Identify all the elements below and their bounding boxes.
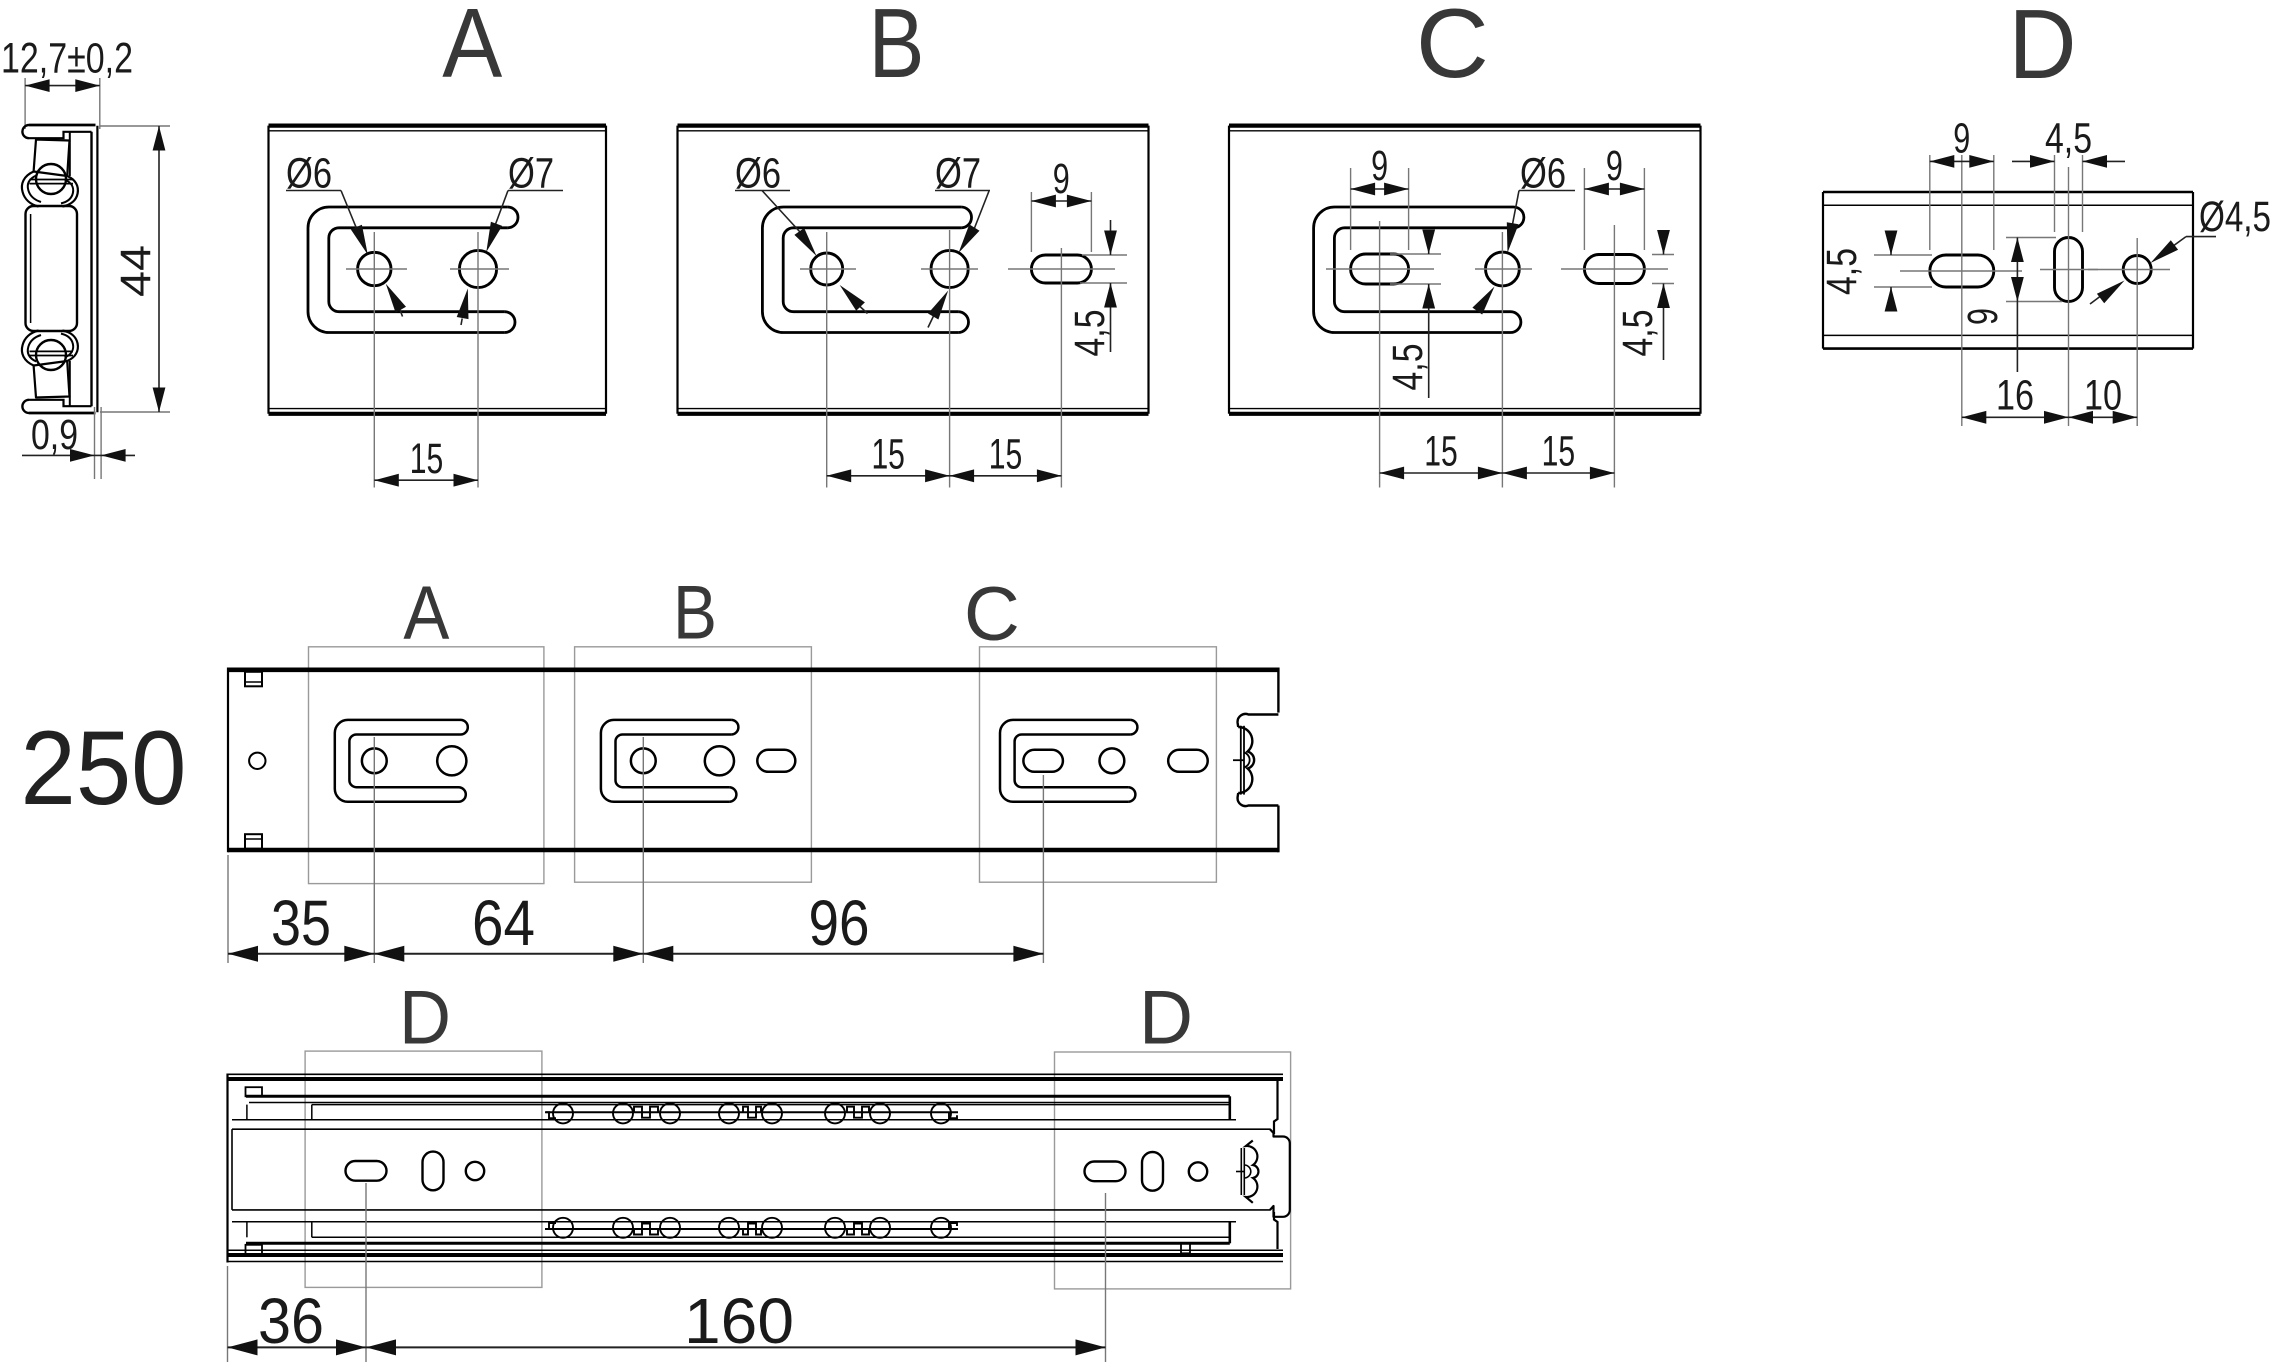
svg-text:35: 35 — [271, 887, 331, 959]
svg-text:D: D — [399, 975, 451, 1060]
svg-text:4,5: 4,5 — [1614, 310, 1662, 357]
svg-text:Ø4,5: Ø4,5 — [2199, 193, 2271, 241]
svg-text:9: 9 — [1606, 142, 1623, 190]
svg-text:D: D — [1139, 975, 1193, 1060]
svg-text:C: C — [964, 572, 1020, 657]
svg-text:9: 9 — [1959, 308, 2007, 325]
svg-text:9: 9 — [1953, 115, 1970, 163]
svg-text:4,5: 4,5 — [1384, 344, 1432, 391]
svg-text:15: 15 — [1542, 428, 1576, 476]
svg-text:44: 44 — [112, 245, 160, 297]
svg-text:160: 160 — [684, 1285, 794, 1357]
svg-text:A: A — [403, 571, 449, 656]
svg-text:10: 10 — [2084, 372, 2122, 420]
svg-text:C: C — [1416, 0, 1489, 98]
svg-text:9: 9 — [1371, 142, 1388, 190]
svg-text:4,5: 4,5 — [1818, 248, 1866, 295]
svg-text:A: A — [442, 0, 503, 98]
svg-text:16: 16 — [1996, 372, 2034, 420]
svg-text:15: 15 — [871, 431, 905, 479]
svg-text:15: 15 — [410, 435, 444, 483]
svg-text:D: D — [2009, 0, 2077, 99]
svg-text:12,7±0,2: 12,7±0,2 — [1, 35, 133, 83]
svg-text:4,5: 4,5 — [1066, 310, 1114, 357]
svg-text:B: B — [673, 571, 717, 656]
svg-text:15: 15 — [989, 431, 1023, 479]
svg-text:36: 36 — [258, 1285, 324, 1357]
svg-text:4,5: 4,5 — [2045, 115, 2092, 163]
svg-text:9: 9 — [1053, 155, 1070, 203]
svg-text:250: 250 — [21, 710, 187, 827]
svg-text:15: 15 — [1424, 428, 1458, 476]
svg-text:96: 96 — [809, 887, 870, 959]
svg-text:64: 64 — [472, 887, 535, 959]
svg-text:B: B — [869, 0, 925, 98]
